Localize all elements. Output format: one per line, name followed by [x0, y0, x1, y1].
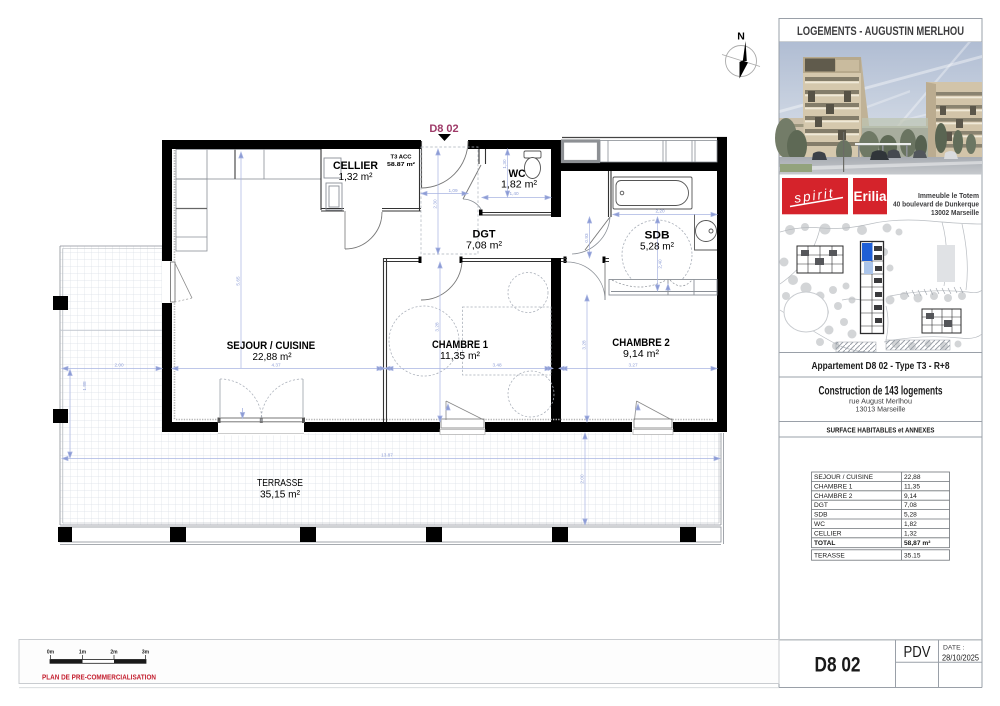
svg-text:1,32: 1,32 — [904, 530, 917, 537]
svg-text:CELLIER: CELLIER — [814, 530, 842, 537]
svg-text:D8 02: D8 02 — [815, 654, 861, 677]
svg-text:35.15: 35.15 — [904, 553, 921, 560]
svg-text:CHAMBRE 2: CHAMBRE 2 — [814, 493, 853, 500]
svg-text:13013 Marseille: 13013 Marseille — [856, 405, 906, 414]
svg-text:22,88: 22,88 — [904, 474, 921, 481]
svg-text:PLAN DE PRE-COMMERCIALISATION: PLAN DE PRE-COMMERCIALISATION — [42, 673, 156, 682]
svg-text:SDB: SDB — [814, 512, 828, 519]
svg-text:TOTAL: TOTAL — [814, 540, 835, 547]
svg-text:2,20: 2,20 — [655, 209, 665, 214]
svg-text:1,09: 1,09 — [448, 188, 458, 193]
svg-text:5.65: 5.65 — [236, 276, 241, 286]
svg-text:28/10/2025: 28/10/2025 — [942, 654, 980, 663]
svg-text:2,40: 2,40 — [658, 259, 663, 269]
svg-text:DGT: DGT — [473, 229, 496, 241]
svg-text:DGT: DGT — [814, 502, 828, 509]
svg-text:3.27: 3.27 — [628, 363, 638, 368]
svg-text:7,08: 7,08 — [904, 502, 917, 509]
svg-text:0.93: 0.93 — [584, 233, 589, 243]
svg-text:9,14 m²: 9,14 m² — [623, 349, 660, 360]
svg-text:11,35 m²: 11,35 m² — [440, 351, 481, 362]
svg-text:N: N — [737, 31, 745, 43]
svg-text:2.30: 2.30 — [433, 199, 438, 209]
svg-text:2.00: 2.00 — [580, 474, 585, 484]
svg-text:3.48: 3.48 — [492, 363, 502, 368]
svg-text:1,32 m²: 1,32 m² — [339, 172, 374, 183]
svg-text:7,08 m²: 7,08 m² — [466, 241, 503, 252]
svg-text:35,15 m²: 35,15 m² — [260, 490, 301, 501]
svg-text:CHAMBRE 1: CHAMBRE 1 — [814, 483, 853, 490]
svg-text:CHAMBRE 2: CHAMBRE 2 — [612, 337, 670, 349]
svg-text:CHAMBRE 1: CHAMBRE 1 — [432, 339, 488, 351]
svg-text:1,82: 1,82 — [904, 521, 917, 528]
svg-text:5,28: 5,28 — [904, 512, 917, 519]
svg-text:T3 ACC: T3 ACC — [391, 155, 413, 161]
svg-text:D8 02: D8 02 — [429, 123, 458, 135]
svg-text:4.37: 4.37 — [271, 363, 281, 368]
svg-text:SEJOUR / CUISINE: SEJOUR / CUISINE — [814, 474, 874, 481]
svg-text:3.28: 3.28 — [582, 340, 587, 350]
svg-text:SEJOUR / CUISINE: SEJOUR / CUISINE — [227, 340, 316, 352]
svg-text:1.88: 1.88 — [82, 381, 87, 391]
svg-text:Appartement D8 02 - Type T3 -: Appartement D8 02 - Type T3 - R+8 — [812, 361, 950, 372]
svg-text:2m: 2m — [110, 650, 118, 656]
svg-text:0m: 0m — [47, 650, 55, 656]
svg-text:WC: WC — [814, 521, 825, 528]
svg-text:PDV: PDV — [904, 644, 931, 661]
svg-text:CELLIER: CELLIER — [333, 160, 378, 172]
svg-text:11,35: 11,35 — [904, 483, 920, 490]
svg-text:TERRASSE: TERRASSE — [257, 477, 303, 489]
svg-text:SDB: SDB — [645, 230, 670, 242]
svg-text:13002 Marseille: 13002 Marseille — [931, 208, 979, 217]
svg-text:SURFACE HABITABLES et ANNEXES: SURFACE HABITABLES et ANNEXES — [827, 428, 935, 435]
svg-text:TERASSE: TERASSE — [814, 553, 845, 560]
svg-text:9,14: 9,14 — [904, 493, 917, 500]
svg-text:3.28: 3.28 — [435, 322, 440, 332]
svg-text:3m: 3m — [142, 650, 150, 656]
svg-text:58,87 m²: 58,87 m² — [904, 540, 931, 547]
svg-text:58.87 m²: 58.87 m² — [387, 161, 415, 168]
svg-text:WC: WC — [509, 168, 526, 180]
svg-text:5,28 m²: 5,28 m² — [640, 242, 675, 253]
svg-text:1,40: 1,40 — [509, 191, 519, 196]
svg-text:1,82 m²: 1,82 m² — [501, 180, 538, 191]
svg-text:1m: 1m — [79, 650, 87, 656]
svg-text:2.00: 2.00 — [114, 363, 124, 368]
svg-text:13.87: 13.87 — [381, 453, 393, 458]
svg-text:1,30: 1,30 — [502, 159, 507, 169]
svg-text:LOGEMENTS - AUGUSTIN MERLHOU: LOGEMENTS - AUGUSTIN MERLHOU — [797, 24, 964, 38]
svg-text:DATE :: DATE : — [943, 645, 965, 652]
svg-text:Erilia: Erilia — [853, 189, 887, 204]
svg-text:22,88 m²: 22,88 m² — [253, 352, 293, 363]
